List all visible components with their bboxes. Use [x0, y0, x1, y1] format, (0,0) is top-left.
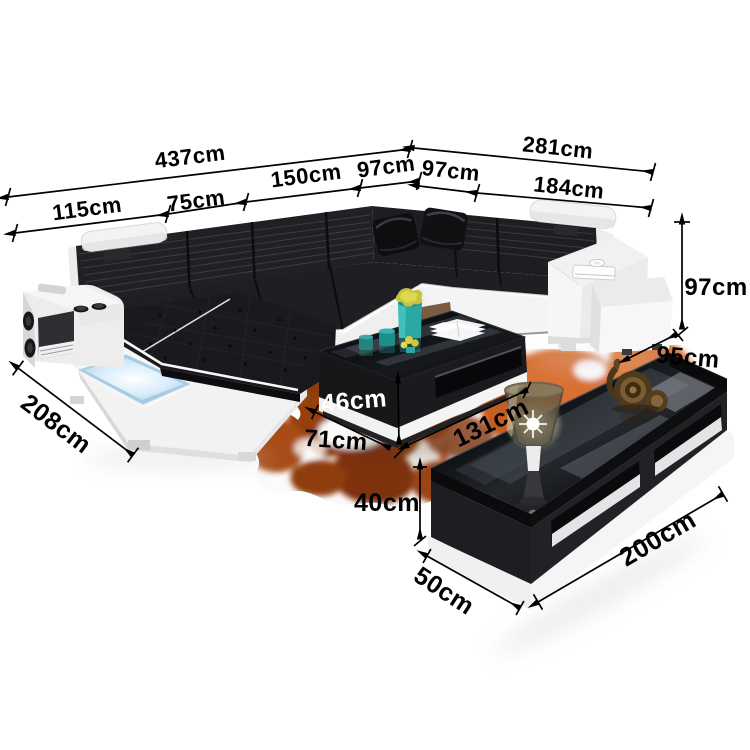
svg-text:71cm: 71cm — [303, 425, 368, 456]
svg-text:97cm: 97cm — [684, 274, 747, 301]
svg-text:46cm: 46cm — [320, 384, 388, 418]
svg-text:95cm: 95cm — [655, 341, 721, 373]
svg-text:40cm: 40cm — [354, 489, 420, 517]
